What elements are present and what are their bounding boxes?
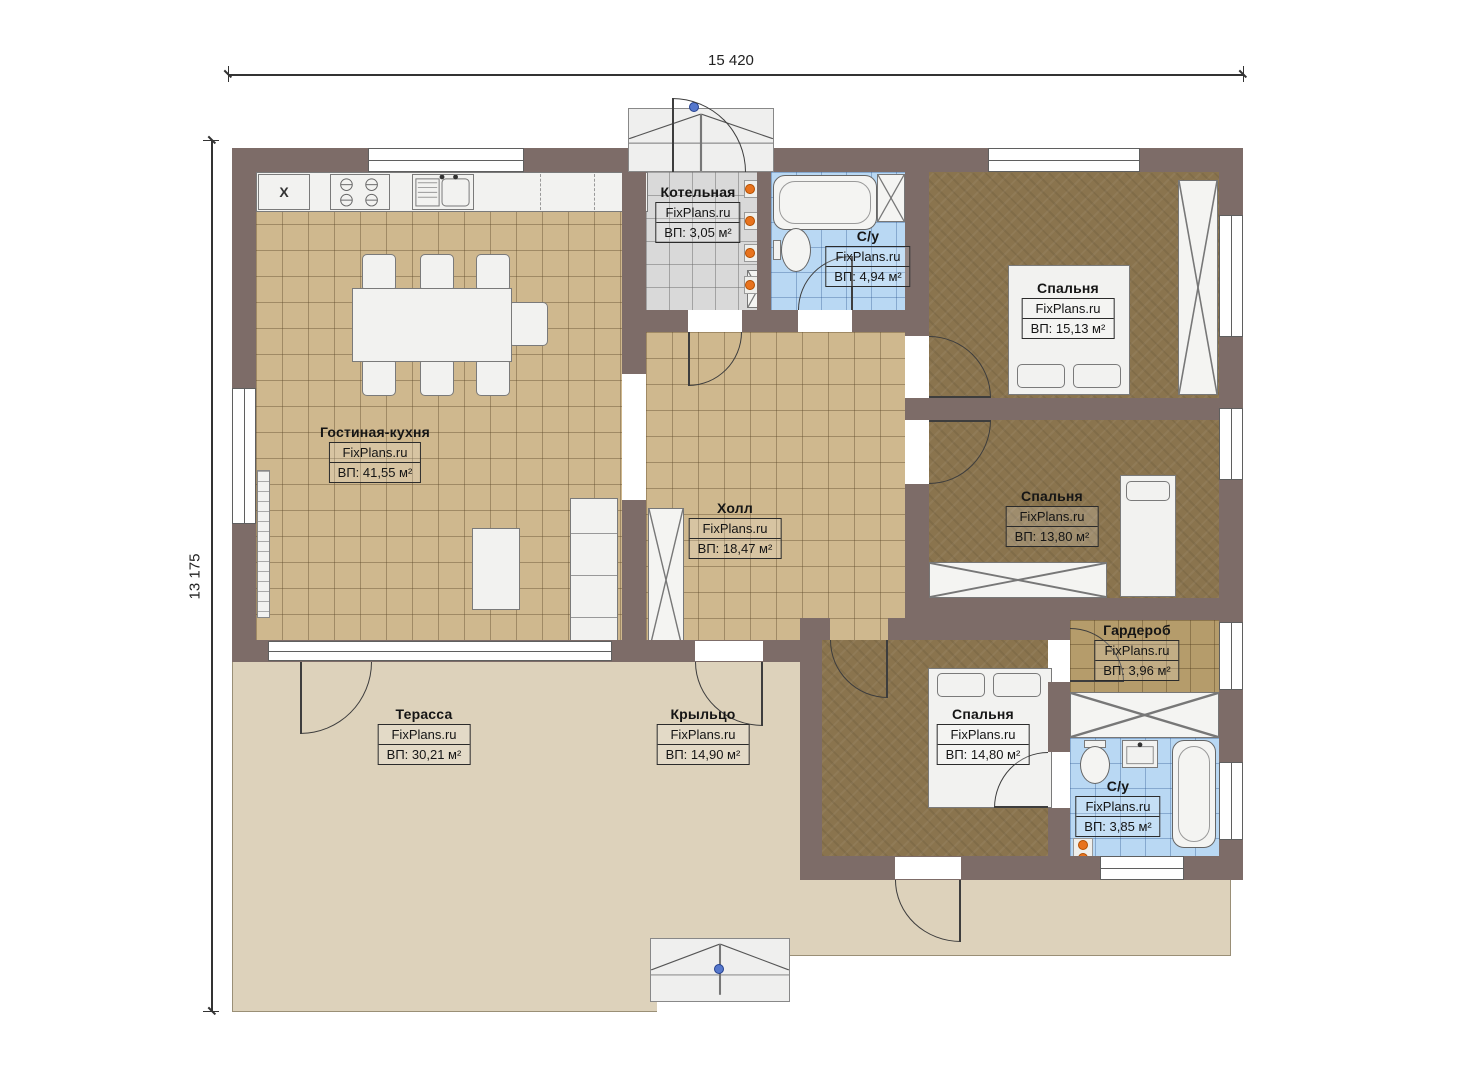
room-area: ВП: 15,13 м² [1023, 318, 1114, 338]
terrace-glass-doors [268, 641, 612, 661]
room-area: ВП: 30,21 м² [379, 744, 470, 764]
wall-bedroom3-north-b [888, 618, 1070, 640]
cabinet-mark: X [279, 184, 288, 200]
room-brand: FixPlans.ru [1076, 797, 1159, 816]
dimension-height-label: 13 175 [187, 547, 204, 607]
window-bedroom1-top [988, 148, 1140, 172]
room-label-hall: Холл FixPlans.ru ВП: 18,47 м² [689, 500, 782, 559]
room-label-bedroom3: Спальня FixPlans.ru ВП: 14,80 м² [937, 706, 1030, 765]
dining-chair [476, 254, 510, 292]
room-area: ВП: 13,80 м² [1007, 526, 1098, 546]
backyard-door-gap [895, 857, 961, 879]
dining-chair [508, 302, 548, 346]
terrace-edge [802, 955, 1231, 956]
window-bathroom2-right [1219, 762, 1243, 840]
room-brand: FixPlans.ru [658, 725, 749, 744]
room-label-bathroom2: С/у FixPlans.ru ВП: 3,85 м² [1075, 778, 1160, 837]
room-brand: FixPlans.ru [938, 725, 1029, 744]
room-name: Гостиная-кухня [320, 424, 430, 440]
backyard-door-leaf [959, 880, 961, 942]
room-name: Холл [689, 500, 782, 516]
sofa [570, 498, 618, 652]
room-brand: FixPlans.ru [1023, 299, 1114, 318]
toilet-1-tank [773, 240, 781, 260]
window-living-left [232, 388, 256, 524]
dimension-width-label: 15 420 [708, 52, 754, 69]
room-brand: FixPlans.ru [826, 247, 909, 266]
dining-chair [362, 358, 396, 396]
room-area: ВП: 4,94 м² [826, 266, 909, 286]
porch-door-leaf [761, 662, 763, 726]
pillow [937, 673, 985, 697]
room-brand: FixPlans.ru [656, 203, 739, 222]
room-name: Котельная [655, 184, 740, 200]
bathroom2-door-leaf [994, 806, 1048, 808]
wardrobe-bedroom2 [929, 562, 1107, 598]
room-brand: FixPlans.ru [1007, 507, 1098, 526]
room-area: ВП: 3,85 м² [1076, 816, 1159, 836]
room-label-bedroom1: Спальня FixPlans.ru ВП: 15,13 м² [1022, 280, 1115, 339]
wall-bedroom3-east-b [1048, 682, 1070, 752]
room-name: Крыльцо [657, 706, 750, 722]
wall-bedroom2-south [905, 598, 1243, 620]
window-bedroom1-right [1219, 215, 1243, 337]
window-kitchen [368, 148, 524, 172]
wall-bedroom3-left [800, 640, 822, 880]
pillow [1073, 364, 1121, 388]
terrace-edge [232, 1011, 657, 1012]
room-area: ВП: 3,96 м² [1095, 660, 1178, 680]
room-area: ВП: 14,80 м² [938, 744, 1029, 764]
wall-bedroom3-north-a [800, 618, 830, 640]
wall-shelf [257, 470, 270, 618]
dining-table [352, 288, 512, 362]
room-label-living-kitchen: Гостиная-кухня FixPlans.ru ВП: 41,55 м² [320, 424, 430, 483]
pillow [1017, 364, 1065, 388]
terrace-door-leaf [300, 662, 302, 734]
room-name: Спальня [1006, 488, 1099, 504]
room-label-bedroom2: Спальня FixPlans.ru ВП: 13,80 м² [1006, 488, 1099, 547]
porch-door-gap [695, 641, 763, 661]
wall-living-hall-top [622, 148, 646, 374]
room-brand: FixPlans.ru [690, 519, 781, 538]
kitchen-cabinet-x: X [258, 174, 310, 210]
sink-detail [413, 175, 473, 210]
boiler-door-leaf [688, 332, 690, 386]
room-label-porch: Крыльцо FixPlans.ru ВП: 14,90 м² [657, 706, 750, 765]
dimension-height-line [211, 140, 213, 1012]
door-axis-marker [714, 964, 724, 974]
wall-hall-north-b [742, 310, 798, 332]
room-name: С/у [825, 228, 910, 244]
terrace-edge [232, 662, 233, 1012]
bedroom3-door-leaf [886, 640, 888, 698]
room-label-boiler: Котельная FixPlans.ru ВП: 3,05 м² [655, 184, 740, 243]
counter-divider [594, 174, 595, 210]
bed-2 [1120, 475, 1176, 597]
washbasin-detail [1123, 741, 1157, 767]
wall-hall-north-a [646, 310, 688, 332]
sofa-divider [571, 533, 617, 534]
stove [330, 174, 390, 210]
dimension-width-line [228, 74, 1244, 76]
living-kitchen-floor [256, 172, 622, 640]
window-wardrobe-right [1219, 622, 1243, 690]
room-label-wardrobe: Гардероб FixPlans.ru ВП: 3,96 м² [1094, 622, 1179, 681]
bedroom1-door-leaf [929, 396, 991, 398]
room-name: Спальня [1022, 280, 1115, 296]
hall-closet [648, 508, 684, 652]
stove-burners [331, 175, 389, 210]
room-area: ВП: 3,05 м² [656, 222, 739, 242]
room-brand: FixPlans.ru [1095, 641, 1178, 660]
room-brand: FixPlans.ru [379, 725, 470, 744]
window-bottom-right [1100, 856, 1184, 880]
room-name: С/у [1075, 778, 1160, 794]
wall-hall-north-c [852, 310, 905, 332]
sofa-divider [571, 617, 617, 618]
counter-divider [540, 174, 541, 210]
porch-floor-right [802, 880, 1231, 956]
room-area: ВП: 41,55 м² [330, 462, 421, 482]
bedroom2-door-leaf [929, 420, 991, 422]
dining-chair [420, 254, 454, 292]
window-bedroom2-right [1219, 408, 1243, 480]
room-area: ВП: 18,47 м² [690, 538, 781, 558]
dining-chair [476, 358, 510, 396]
wardrobe-strip [1070, 692, 1219, 738]
dining-chair [420, 358, 454, 396]
room-name: Спальня [937, 706, 1030, 722]
hall-floor [646, 332, 905, 640]
room-brand: FixPlans.ru [330, 443, 421, 462]
kitchen-sink [412, 174, 474, 210]
bathtub-2 [1172, 740, 1216, 848]
wardrobe-bedroom1 [1178, 180, 1218, 395]
wall-hall-east-b [905, 398, 929, 420]
toilet-1 [781, 228, 811, 272]
terrace-edge [1230, 880, 1231, 956]
room-label-terrace: Терасса FixPlans.ru ВП: 30,21 м² [378, 706, 471, 765]
wall-bedroom1-2 [929, 398, 1219, 420]
sofa-divider [571, 575, 617, 576]
shower-cabin-1 [877, 174, 905, 222]
room-area: ВП: 14,90 м² [658, 744, 749, 764]
pillow [993, 673, 1041, 697]
entrance-door-leaf [672, 98, 674, 172]
pillow [1126, 481, 1170, 501]
wall-bedroom3-east-c [1048, 808, 1070, 880]
room-name: Терасса [378, 706, 471, 722]
dining-chair [362, 254, 396, 292]
room-name: Гардероб [1094, 622, 1179, 638]
wall-living-hall-bottom [622, 500, 646, 662]
bathtub-1 [773, 175, 877, 230]
room-label-bathroom1: С/у FixPlans.ru ВП: 4,94 м² [825, 228, 910, 287]
wall-boiler-bath [757, 172, 771, 310]
washbasin-2 [1122, 740, 1158, 768]
kitchen-island [472, 528, 520, 610]
floor-plan: 15 420 13 175 X [0, 0, 1474, 1080]
wall-bedroom3-east-a [1048, 618, 1070, 628]
